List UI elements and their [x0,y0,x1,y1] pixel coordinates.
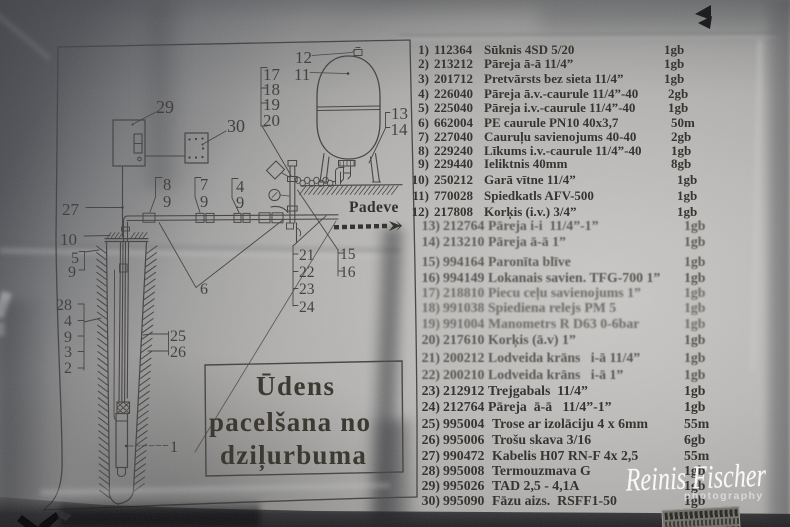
svg-text:30: 30 [227,116,245,136]
svg-text:29: 29 [156,97,174,117]
svg-text:1: 1 [170,439,178,456]
